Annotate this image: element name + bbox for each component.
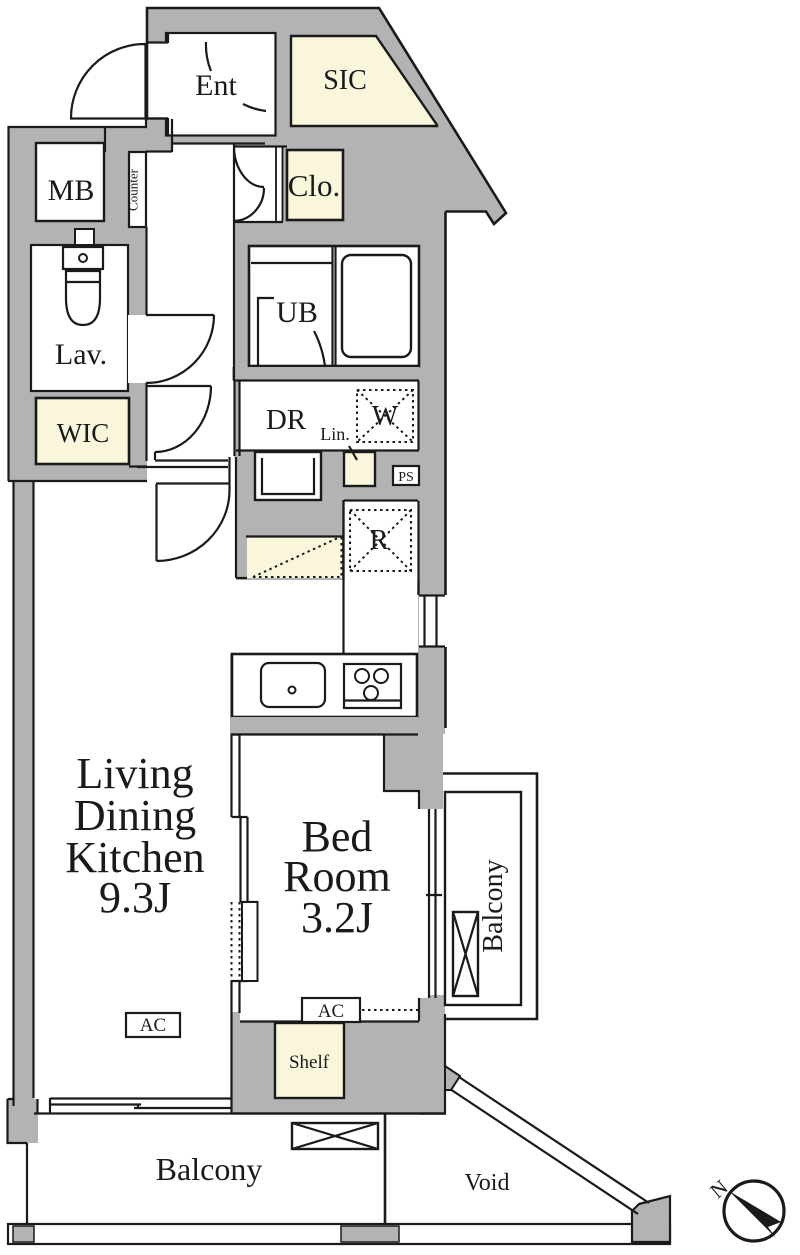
svg-text:Lav.: Lav.: [55, 338, 107, 371]
svg-text:Balcony: Balcony: [156, 1151, 263, 1187]
svg-text:9.3J: 9.3J: [99, 873, 171, 922]
svg-text:Lin.: Lin.: [320, 424, 350, 444]
svg-text:WIC: WIC: [57, 418, 109, 448]
svg-text:Counter: Counter: [126, 168, 141, 211]
svg-text:MB: MB: [48, 174, 95, 207]
svg-text:PS: PS: [398, 470, 414, 485]
svg-text:UB: UB: [276, 296, 318, 329]
svg-text:R: R: [370, 525, 389, 556]
svg-text:Shelf: Shelf: [289, 1052, 330, 1073]
svg-text:AC: AC: [140, 1015, 166, 1036]
svg-text:Clo.: Clo.: [288, 168, 341, 203]
svg-text:W: W: [372, 401, 399, 432]
svg-text:Ent: Ent: [195, 69, 237, 102]
svg-text:Void: Void: [465, 1170, 510, 1196]
svg-text:SIC: SIC: [323, 65, 367, 96]
svg-text:DR: DR: [266, 404, 307, 436]
svg-text:AC: AC: [318, 1001, 344, 1022]
svg-text:Balcony: Balcony: [478, 859, 509, 952]
svg-text:3.2J: 3.2J: [301, 893, 373, 942]
